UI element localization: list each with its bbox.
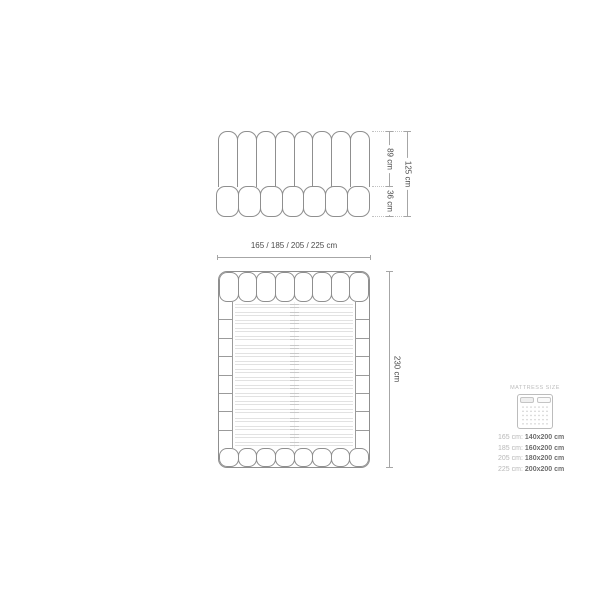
rail-segment [219,302,232,320]
headboard-tab [256,272,276,302]
footboard-tab [294,448,314,467]
legend-row: 185 cm:160x200 cm [498,444,574,455]
slat-center-mark [290,304,299,308]
dimension-tick [386,131,393,132]
legend-mattress-size: 140x200 cm [525,434,564,441]
slat [235,377,353,381]
base-segment [325,186,348,217]
slat-center-mark [290,336,299,340]
base-segment [216,186,239,217]
legend-mattress-size: 160x200 cm [525,445,564,452]
legend-title: MATTRESS SIZE [496,385,574,391]
slat [235,418,353,422]
headboard-tab [238,272,258,302]
slat-center-mark [290,434,299,438]
slat-center-mark [290,409,299,413]
dimension-tick [404,131,411,132]
legend-mattress-size: 200x200 cm [525,466,564,473]
legend-mattress-size: 180x200 cm [525,455,564,462]
slat-center-mark [290,361,299,365]
headboard-tab [275,272,295,302]
base-segment [238,186,261,217]
rail-segment [356,376,369,394]
rail-segment [219,357,232,375]
legend-bed-width: 185 cm: [498,445,523,452]
top-view-footboard [219,448,369,467]
bed-width-label: 165 / 185 / 205 / 225 cm [198,241,390,250]
headboard-channel [237,131,257,187]
base-segment [347,186,370,217]
headboard-tab [312,272,332,302]
base-height-label: 36 cm [386,187,395,215]
rail-segment [356,431,369,448]
slat-center-mark [290,442,299,446]
slat-center-mark [290,401,299,405]
headboard-channel [294,131,314,187]
footboard-tab [349,448,369,467]
slat [235,401,353,405]
headboard-channel [275,131,295,187]
slat [235,393,353,397]
side-rail-left [219,302,233,448]
slat-center-mark [290,353,299,357]
slat [235,312,353,316]
headboard-tab [349,272,369,302]
slat [235,353,353,357]
slat [235,426,353,430]
mattress-quilting-dots [521,405,549,425]
footboard-tab [312,448,332,467]
rail-segment [219,339,232,357]
legend-row: 225 cm:200x200 cm [498,465,574,476]
dimension-tick [217,255,218,260]
rail-segment [356,394,369,412]
headboard-height-label: 89 cm [386,145,395,173]
base-segment [260,186,283,217]
slat-center-mark [290,377,299,381]
slat [235,385,353,389]
footboard-tab [275,448,295,467]
slat [235,434,353,438]
rail-segment [219,412,232,430]
slat [235,336,353,340]
slat-center-mark [290,426,299,430]
base-segment [303,186,326,217]
pillow-left-icon [520,397,534,403]
headboard-tab [331,272,351,302]
slat [235,369,353,373]
slat [235,442,353,446]
footboard-tab [219,448,239,467]
mattress-icon [517,394,553,429]
rail-segment [219,394,232,412]
slat [235,409,353,413]
slat-center-mark [290,385,299,389]
top-view-frame [218,271,370,468]
footboard-tab [238,448,258,467]
legend-bed-width: 205 cm: [498,455,523,462]
slat [235,345,353,349]
rail-segment [219,376,232,394]
slat [235,328,353,332]
slat-center-mark [290,418,299,422]
slat-area [235,304,353,446]
mattress-size-legend: MATTRESS SIZE 165 cm:140x200 cm185 cm:16… [496,385,574,476]
headboard-channel [312,131,332,187]
headboard-channel [218,131,238,187]
top-view-headboard [219,272,369,302]
legend-rows: 165 cm:140x200 cm185 cm:160x200 cm205 cm… [496,433,574,476]
rail-segment [356,412,369,430]
rail-segment [356,357,369,375]
legend-row: 205 cm:180x200 cm [498,454,574,465]
headboard-tab [219,272,239,302]
slat-center-mark [290,369,299,373]
dimension-tick [404,216,411,217]
dimension-line-width [217,257,371,258]
dimension-line-length [389,271,390,468]
footboard-tab [331,448,351,467]
headboard-channel [256,131,276,187]
bed-dimensions-diagram: 89 cm 36 cm 125 cm 165 / 185 / 205 / 225… [0,0,600,600]
footboard-tab [256,448,276,467]
bed-length-label: 230 cm [393,353,402,385]
legend-bed-width: 165 cm: [498,434,523,441]
legend-row: 165 cm:140x200 cm [498,433,574,444]
dimension-tick [386,216,393,217]
total-height-label: 125 cm [404,158,413,190]
rail-segment [219,320,232,338]
slat [235,361,353,365]
dimension-tick [386,467,393,468]
slat [235,320,353,324]
rail-segment [219,431,232,448]
legend-bed-width: 225 cm: [498,466,523,473]
rail-segment [356,320,369,338]
rail-segment [356,302,369,320]
pillow-right-icon [537,397,551,403]
slat-center-mark [290,345,299,349]
slat-center-mark [290,328,299,332]
slat [235,304,353,308]
rail-segment [356,339,369,357]
slat-center-mark [290,312,299,316]
base-segment [282,186,305,217]
front-view-headboard [218,131,370,187]
side-rail-right [355,302,369,448]
dimension-tick [370,255,371,260]
headboard-tab [294,272,314,302]
slat-center-mark [290,320,299,324]
dimension-tick [386,271,393,272]
front-view-base [216,186,370,217]
headboard-channel [331,131,351,187]
slat-center-mark [290,393,299,397]
headboard-channel [350,131,370,187]
